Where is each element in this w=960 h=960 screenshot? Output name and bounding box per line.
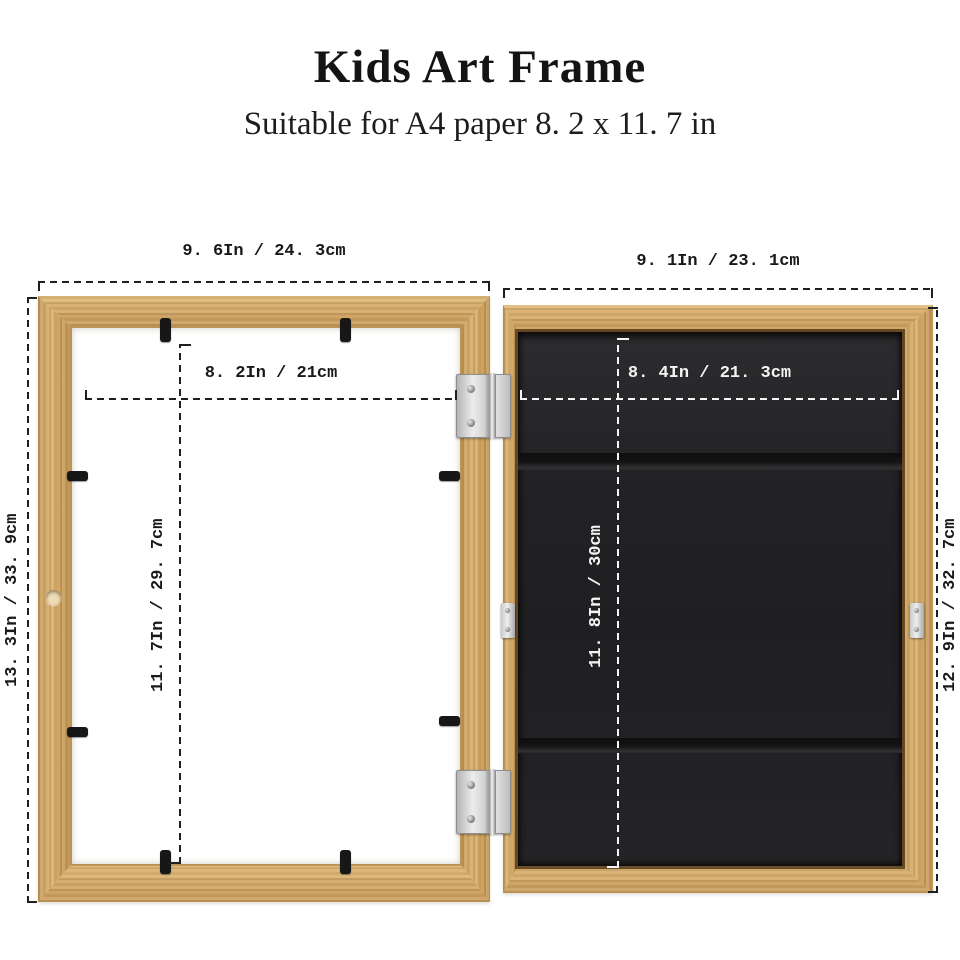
product-diagram: Kids Art Frame Suitable for A4 paper 8. …: [0, 0, 960, 960]
dimension-tick: [38, 281, 40, 291]
dimension-tick: [169, 862, 179, 864]
dimension-tick: [931, 288, 933, 298]
dimension-tick: [607, 866, 617, 868]
dimension-tick: [27, 901, 37, 903]
dimension-label-back-board-height: 11. 8In / 30cm: [584, 432, 610, 762]
hanging-hole: [46, 590, 61, 605]
dimension-label-back-board-width: 8. 4In / 21. 3cm: [520, 364, 899, 383]
product-subtitle: Suitable for A4 paper 8. 2 x 11. 7 in: [0, 106, 960, 143]
retainer-clip: [67, 727, 88, 737]
screw-icon: [467, 419, 475, 427]
dimension-tick: [181, 344, 191, 346]
retainer-clip: [439, 716, 460, 726]
back-frame-rail-right: [902, 305, 933, 893]
front-frame-opening: [70, 326, 462, 866]
dimension-label-front-opening-height: 11. 7In / 29. 7cm: [146, 440, 172, 770]
screw-icon: [467, 781, 475, 789]
dimension-tick: [85, 390, 87, 400]
front-frame-rail-bottom: [38, 866, 490, 902]
dimension-line-back-outer-width: [503, 288, 933, 290]
dimension-tick: [619, 338, 629, 340]
dimension-label-front-opening-width: 8. 2In / 21cm: [85, 364, 457, 383]
dimension-line-front-opening-height: [179, 344, 181, 864]
dimension-tick: [897, 390, 899, 400]
screw-icon: [914, 627, 919, 632]
product-title: Kids Art Frame: [0, 40, 960, 94]
back-panel: [518, 332, 902, 866]
mounting-bracket: [910, 603, 924, 638]
dimension-tick: [503, 288, 505, 298]
dimension-label-front-outer-width: 9. 6In / 24. 3cm: [38, 242, 490, 261]
screw-icon: [505, 608, 510, 613]
dimension-tick: [520, 390, 522, 400]
retainer-clip: [340, 850, 351, 874]
dimension-label-back-outer-height: 12. 9In / 32. 7cm: [938, 445, 960, 765]
dimension-line-front-outer-width: [38, 281, 490, 283]
dimension-line-front-outer-height: [27, 297, 29, 903]
retainer-clip: [67, 471, 88, 481]
back-panel-ridge: [518, 738, 902, 753]
screw-icon: [505, 627, 510, 632]
back-frame: [503, 305, 933, 893]
dimension-tick: [928, 891, 938, 893]
hinge-barrel-icon: [489, 769, 496, 835]
screw-icon: [914, 608, 919, 613]
dimension-tick: [488, 281, 490, 291]
back-frame-rail-top: [503, 305, 933, 332]
back-frame-rail-bottom: [503, 866, 933, 893]
screw-icon: [467, 815, 475, 823]
dimension-tick: [455, 390, 457, 400]
hinge: [456, 374, 511, 438]
retainer-clip: [439, 471, 460, 481]
mounting-bracket: [501, 603, 515, 638]
dimension-line-back-board-height: [617, 338, 619, 868]
retainer-clip: [340, 318, 351, 342]
dimension-tick: [27, 297, 37, 299]
dimension-line-back-board-width: [520, 398, 899, 400]
dimension-tick: [928, 307, 938, 309]
hinge: [456, 770, 511, 834]
hinge-barrel-icon: [489, 373, 496, 439]
front-frame-rail-top: [38, 296, 490, 326]
screw-icon: [467, 385, 475, 393]
back-panel-ridge: [518, 453, 902, 470]
retainer-clip: [160, 318, 171, 342]
front-frame: [38, 296, 490, 902]
dimension-line-front-opening-width: [85, 398, 457, 400]
dimension-label-back-outer-width: 9. 1In / 23. 1cm: [503, 252, 933, 271]
dimension-label-front-outer-height: 13. 3In / 33. 9cm: [0, 440, 26, 760]
